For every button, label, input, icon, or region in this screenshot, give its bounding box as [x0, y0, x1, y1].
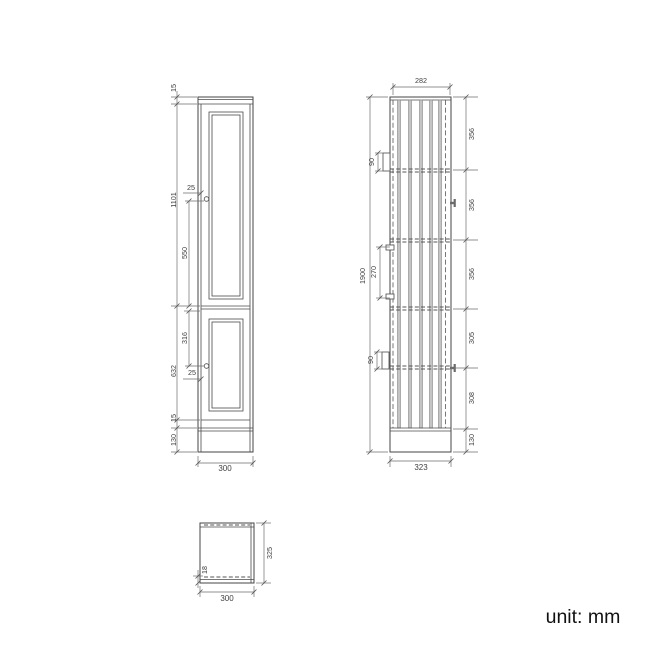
dim-upper-knob-inset: 25 [187, 183, 195, 192]
side-dimensions: 282 1900 90 270 90 356 356 356 305 308 1… [358, 76, 478, 472]
unit-label: unit: mm [546, 606, 621, 628]
dim-lower-door-height: 632 [169, 365, 178, 377]
dim-front-plinth-height: 130 [169, 434, 178, 446]
upper-door-knob [204, 197, 209, 202]
lower-door-panel [209, 319, 243, 411]
upper-door-panel [209, 112, 243, 299]
dim-overall-depth: 323 [414, 463, 428, 472]
side-view: 282 1900 90 270 90 356 356 356 305 308 1… [358, 76, 478, 472]
dim-overall-height: 1900 [358, 268, 367, 284]
dim-plan-door-thickness: 18 [200, 566, 209, 574]
dim-segment-1: 356 [467, 128, 476, 140]
upper-rail-notch [386, 245, 394, 250]
dim-segment-5: 308 [467, 392, 476, 404]
upper-wall-bracket [383, 153, 390, 171]
technical-drawing: 15 1101 25 550 316 632 25 15 130 300 [0, 0, 650, 650]
dim-divider-to-lower-knob: 316 [180, 332, 189, 344]
lower-door-knob [204, 364, 209, 369]
top-view: 18 325 300 [193, 521, 274, 604]
dim-front-top-overhang: 15 [169, 84, 178, 92]
dim-upper-door-height: 1101 [169, 192, 178, 207]
dim-upper-knob-to-door-bottom: 550 [180, 247, 189, 259]
dim-segment-3: 356 [467, 268, 476, 280]
dim-plan-width: 300 [220, 594, 234, 603]
side-cabinet-outline [390, 97, 451, 452]
dim-door-depth: 282 [415, 76, 427, 85]
dim-upper-bracket-height: 90 [367, 158, 376, 166]
dim-segment-4: 305 [467, 332, 476, 344]
plan-dimensions: 18 325 300 [193, 521, 274, 604]
dim-segment-2: 356 [467, 199, 476, 211]
dim-front-overall-width: 300 [218, 464, 232, 473]
dim-front-bottom-gap: 15 [169, 414, 178, 422]
dim-bracket-spacing: 270 [369, 266, 378, 278]
dim-segment-6: 130 [467, 434, 476, 446]
lower-wall-bracket [382, 352, 389, 369]
dim-lower-knob-inset: 25 [188, 368, 196, 377]
dim-lower-bracket-height: 90 [366, 356, 375, 364]
front-cabinet-outline [198, 97, 253, 452]
front-view: 15 1101 25 550 316 632 25 15 130 300 [169, 84, 256, 473]
dim-plan-depth: 325 [265, 547, 274, 559]
